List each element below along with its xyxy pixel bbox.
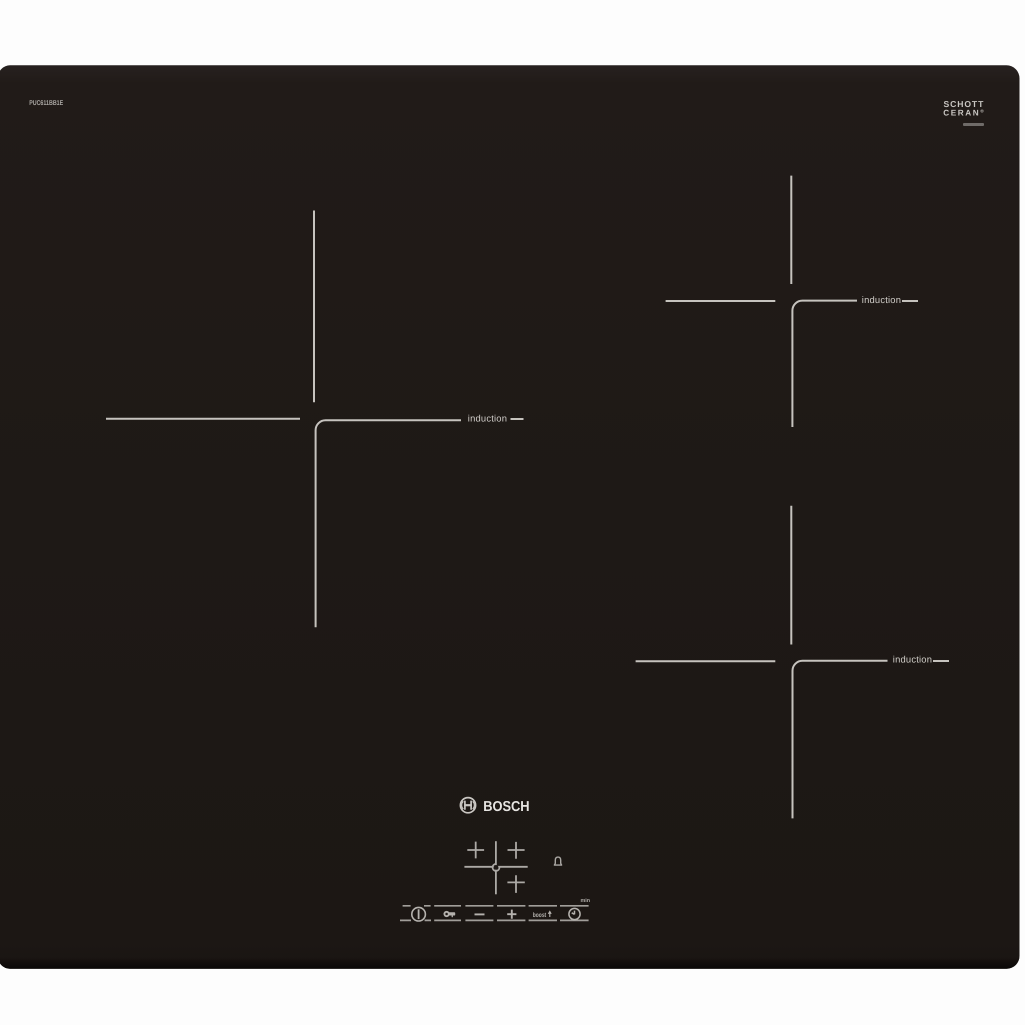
svg-text:induction: induction bbox=[893, 654, 932, 665]
svg-text:induction: induction bbox=[862, 294, 901, 305]
svg-text:PUC611BB1E: PUC611BB1E bbox=[29, 100, 63, 107]
svg-text:boost: boost bbox=[533, 912, 547, 919]
svg-text:min: min bbox=[581, 898, 591, 904]
svg-text:BOSCH: BOSCH bbox=[483, 799, 529, 815]
svg-text:CERAN®: CERAN® bbox=[943, 108, 985, 117]
svg-text:induction: induction bbox=[468, 412, 507, 423]
